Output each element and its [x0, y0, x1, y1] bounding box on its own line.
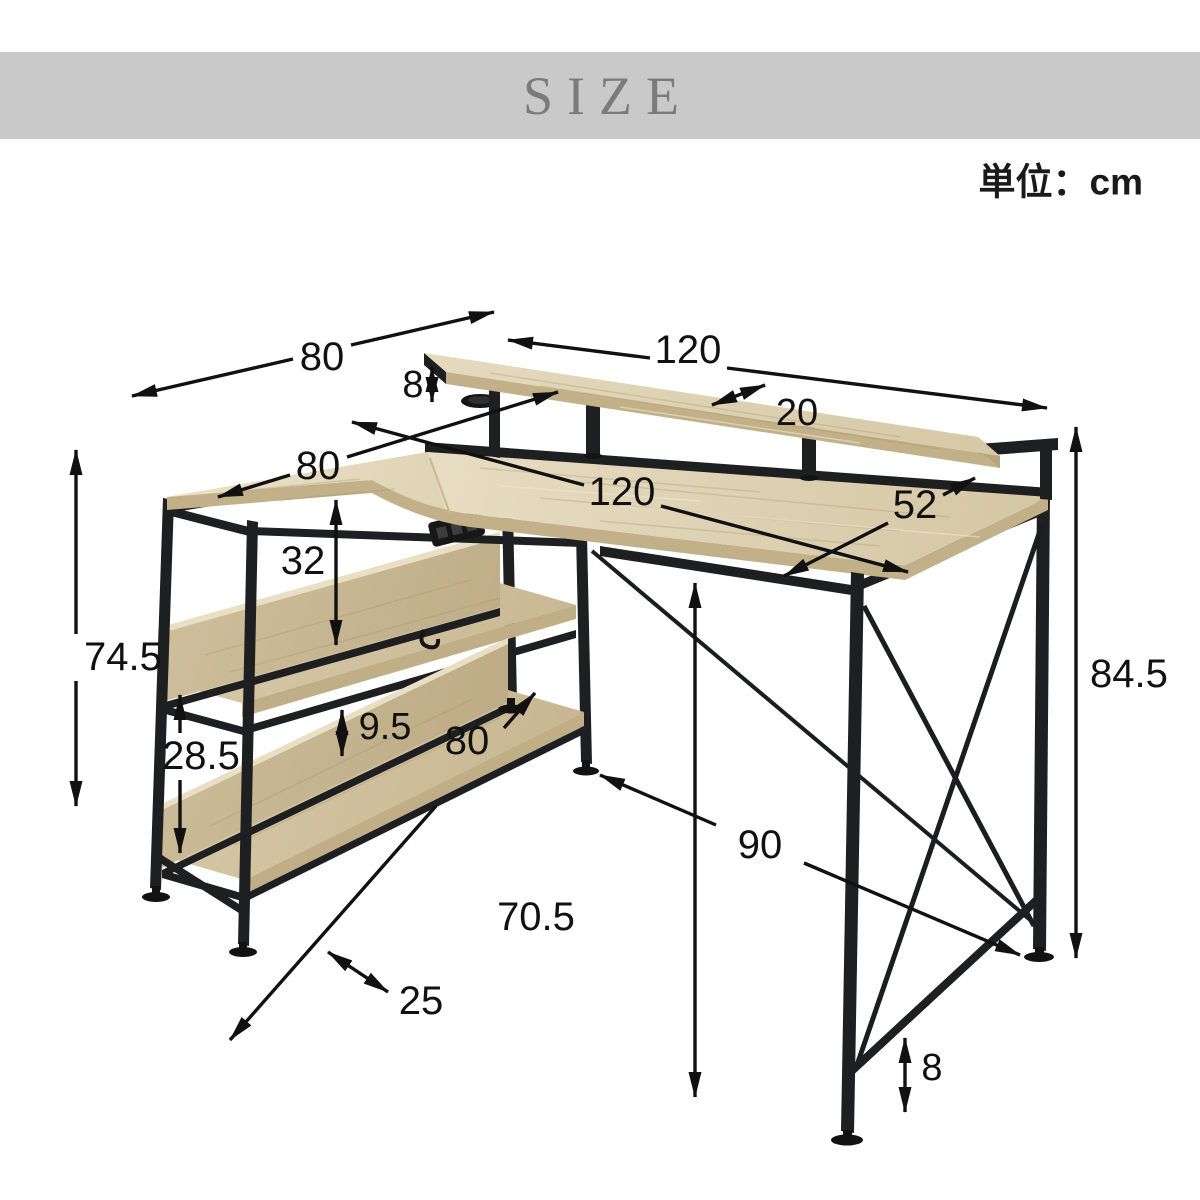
dimension-annotations: 80 120 8 20 80 120 52 — [76, 312, 1168, 1112]
monitor-right-post — [1040, 444, 1052, 500]
svg-text:80: 80 — [445, 719, 490, 763]
dim-shelf-depth: 25 — [328, 952, 443, 1023]
svg-text:8: 8 — [921, 1047, 942, 1089]
shelf1-front-rail — [158, 704, 243, 735]
dim-left-depth: 80 — [132, 312, 494, 396]
size-diagram: SIZE 単位：cm — [0, 0, 1200, 1200]
dim-under-desk-clearance: 70.5 — [497, 583, 695, 1097]
dim-floor-span: 90 — [600, 775, 1020, 955]
svg-text:90: 90 — [738, 823, 783, 867]
svg-text:20: 20 — [776, 392, 818, 434]
rear-right-leg — [1033, 493, 1050, 951]
svg-text:52: 52 — [893, 483, 938, 527]
svg-text:120: 120 — [655, 328, 722, 372]
dim-left-unit-height: 74.5 — [76, 450, 162, 806]
svg-text:84.5: 84.5 — [1090, 652, 1168, 696]
svg-text:120: 120 — [589, 470, 656, 514]
page-title: SIZE — [523, 66, 693, 126]
size-diagram-page: SIZE 単位：cm — [0, 0, 1200, 1200]
svg-text:9.5: 9.5 — [359, 706, 412, 748]
svg-text:80: 80 — [300, 335, 345, 379]
svg-text:8: 8 — [402, 364, 423, 406]
svg-text:74.5: 74.5 — [84, 635, 162, 679]
svg-text:70.5: 70.5 — [497, 895, 575, 939]
dim-base-bar-height: 8 — [905, 1038, 943, 1112]
dim-total-height: 84.5 — [1076, 427, 1168, 958]
x-brace-1 — [864, 606, 1034, 926]
svg-text:80: 80 — [296, 444, 341, 488]
svg-text:25: 25 — [399, 979, 444, 1023]
svg-text:28.5: 28.5 — [162, 734, 240, 778]
unit-top-front-rail — [163, 505, 249, 536]
unit-label: 単位：cm — [979, 162, 1143, 203]
dim-monitor-riser-height: 8 — [402, 364, 432, 406]
svg-text:32: 32 — [281, 539, 326, 583]
monitor-left-support — [489, 386, 500, 458]
